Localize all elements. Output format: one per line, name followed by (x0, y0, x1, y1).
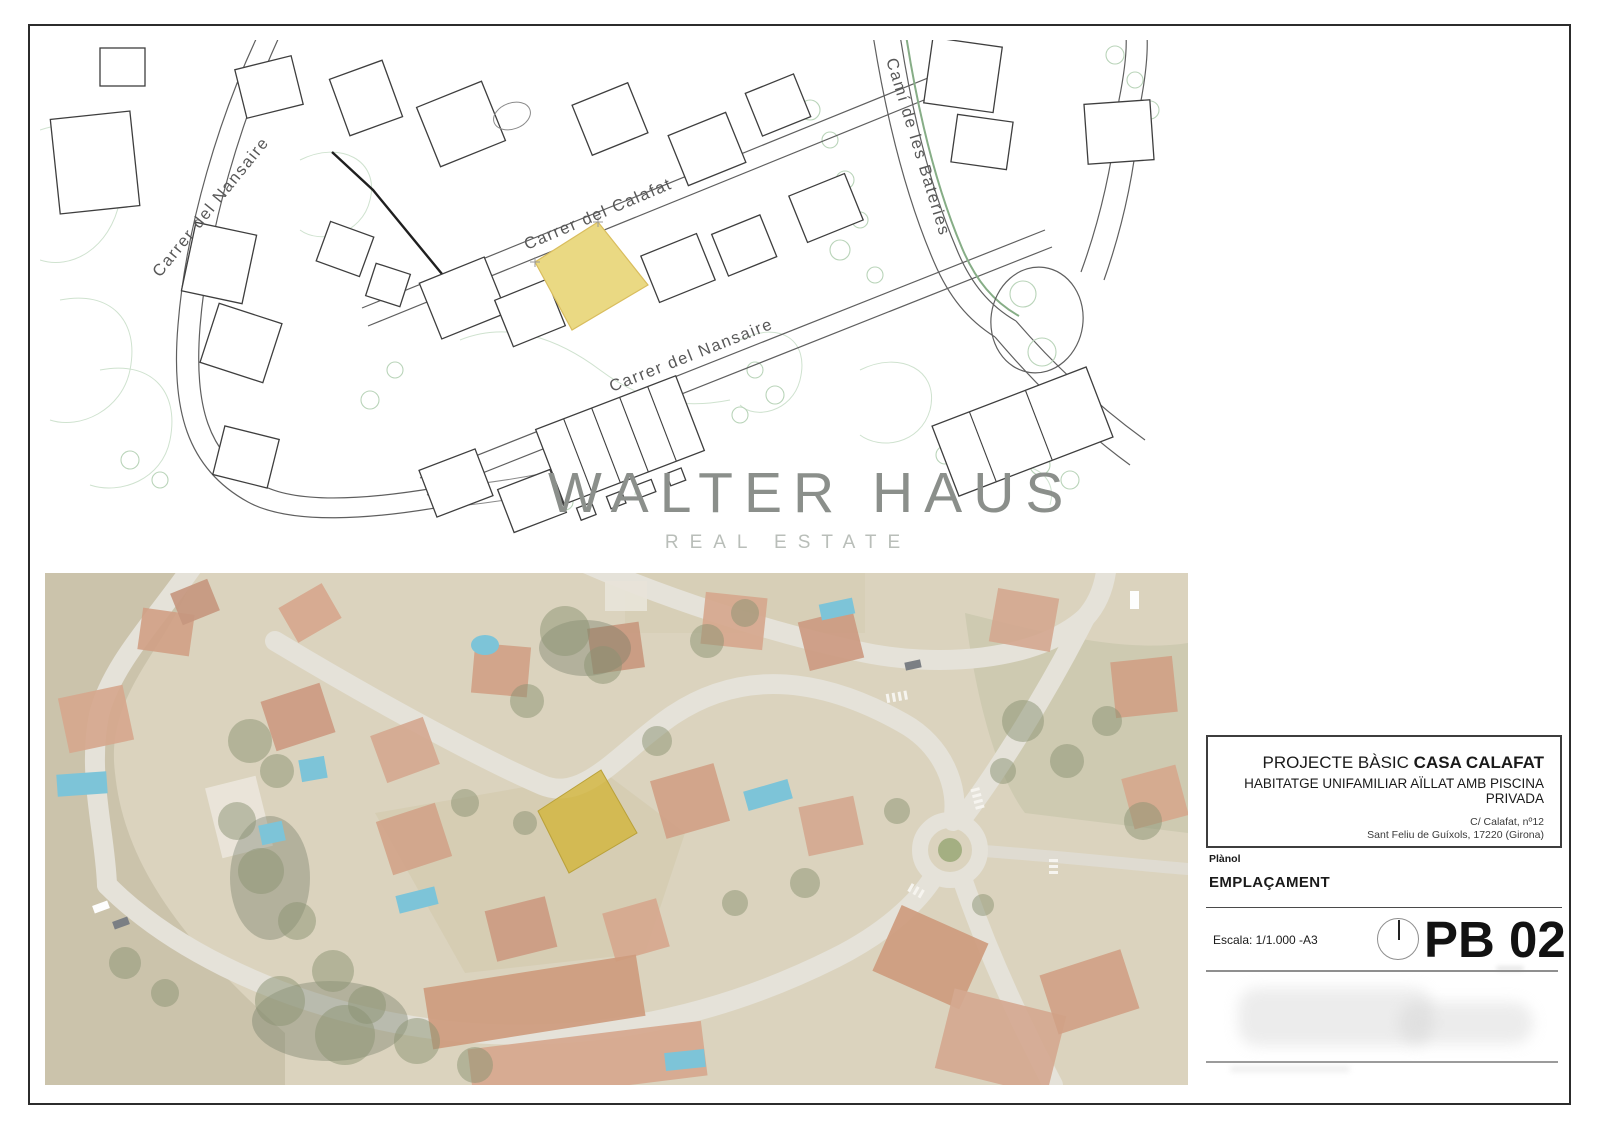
sheet-number: PB 02 (1424, 910, 1566, 969)
project-title: PROJECTE BÀSIC CASA CALAFAT (1208, 753, 1544, 773)
project-title-prefix: PROJECTE BÀSIC (1263, 753, 1409, 772)
faded-mark-bottom (1230, 1066, 1350, 1072)
street-label-nansaire-lower: Carrer del Nansaire (607, 315, 776, 396)
divider-line-thin (1206, 970, 1558, 972)
scale-label: Escala: 1/1.000 -A3 (1213, 933, 1318, 947)
project-title-name: CASA CALAFAT (1414, 753, 1544, 772)
walter-haus-logo: WALTER HAUS REAL ESTATE (548, 460, 1028, 554)
plan-sheet: Carrer del Nansaire Carrer del Calafat C… (0, 0, 1600, 1131)
logo-brand-text: WALTER HAUS (548, 460, 1028, 526)
north-indicator-icon (1377, 918, 1419, 960)
aerial-photo (45, 573, 1188, 1085)
divider-line (1206, 907, 1562, 908)
faded-signature-area (1398, 1002, 1533, 1044)
plan-name: EMPLAÇAMENT (1209, 874, 1330, 891)
project-address-city: Sant Feliu de Guíxols, 17220 (Girona) (1208, 829, 1544, 841)
photo-fade-overlay (45, 573, 1188, 1085)
divider-line-bottom (1206, 1061, 1558, 1063)
title-block: PROJECTE BÀSIC CASA CALAFAT HABITATGE UN… (1206, 735, 1562, 848)
plan-type-label: Plànol (1209, 853, 1241, 865)
project-subtitle: HABITATGE UNIFAMILIAR AÏLLAT AMB PISCINA… (1208, 776, 1544, 806)
logo-tagline-text: REAL ESTATE (548, 532, 1028, 554)
project-address-street: C/ Calafat, nº12 (1208, 816, 1544, 828)
